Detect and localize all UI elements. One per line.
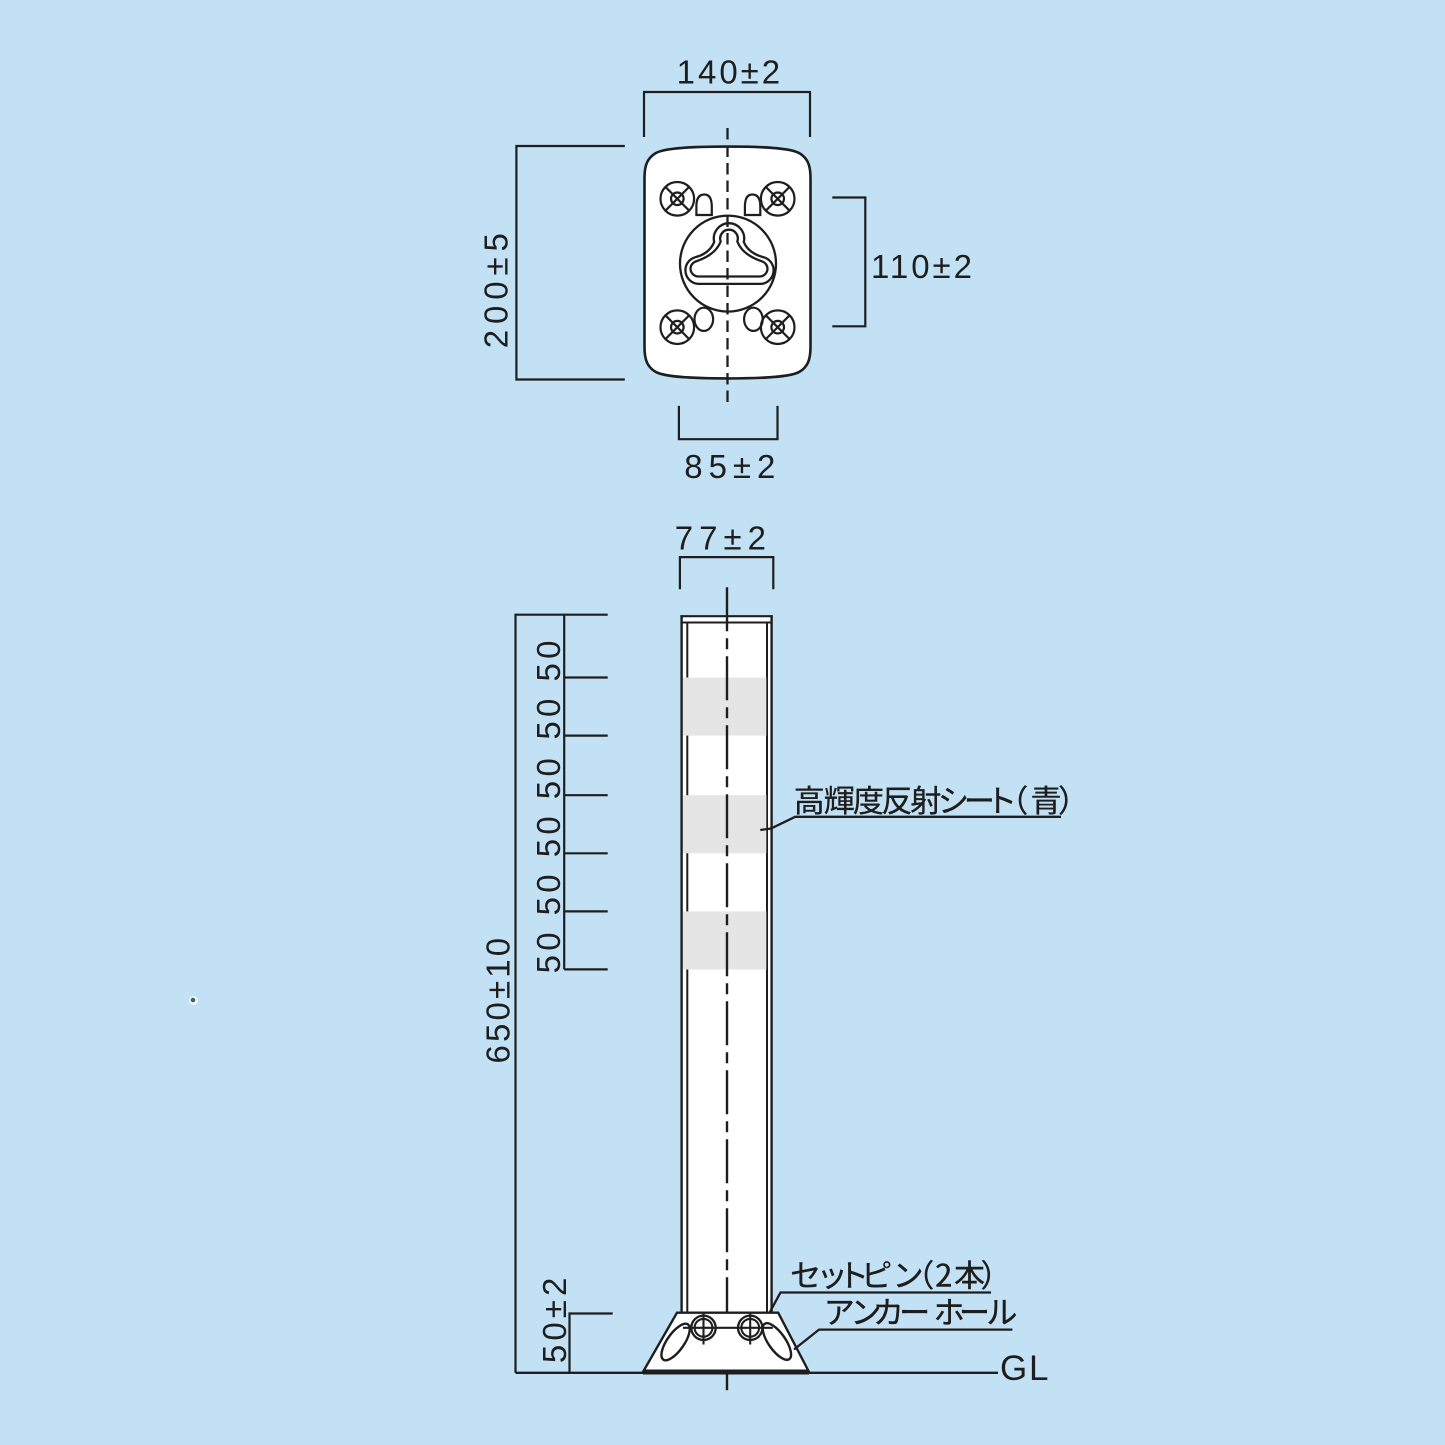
- svg-text:GL: GL: [1000, 1349, 1049, 1388]
- svg-text:140±2: 140±2: [677, 54, 781, 91]
- svg-text:110±2: 110±2: [871, 248, 972, 285]
- svg-text:200±5: 200±5: [478, 233, 515, 348]
